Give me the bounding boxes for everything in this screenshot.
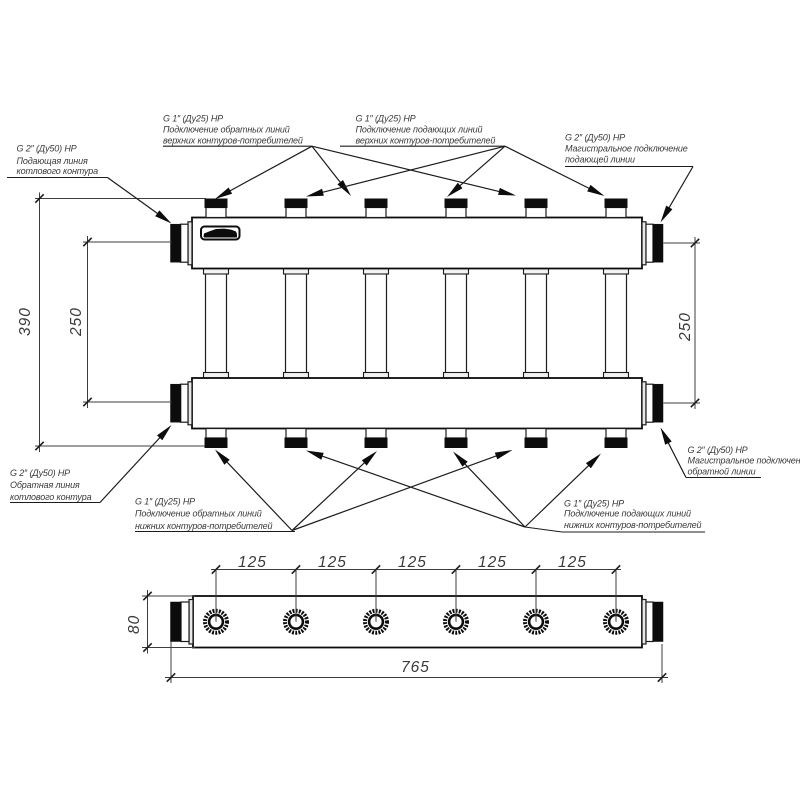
svg-text:125: 125 xyxy=(238,554,267,571)
svg-text:G 1″ (Ду25) НР: G 1″ (Ду25) НР xyxy=(564,499,624,509)
svg-text:котлового контура: котлового контура xyxy=(10,492,92,502)
svg-text:250: 250 xyxy=(677,312,694,342)
svg-text:котлового контура: котлового контура xyxy=(17,166,99,176)
svg-text:G 1″ (Ду25) НР: G 1″ (Ду25) НР xyxy=(135,497,195,507)
svg-text:Подключение подающих линий: Подключение подающих линий xyxy=(564,509,691,519)
svg-text:G 2″ (Ду50) НР: G 2″ (Ду50) НР xyxy=(688,445,748,455)
svg-text:125: 125 xyxy=(398,554,427,571)
svg-text:G 2″ (Ду50) НР: G 2″ (Ду50) НР xyxy=(10,468,70,478)
svg-text:765: 765 xyxy=(401,659,430,676)
svg-text:G 2″ (Ду50) НР: G 2″ (Ду50) НР xyxy=(565,133,625,143)
svg-text:390: 390 xyxy=(17,307,34,336)
svg-text:обратной линии: обратной линии xyxy=(688,467,756,477)
svg-text:Магистральное подключение: Магистральное подключение xyxy=(565,144,688,154)
svg-text:125: 125 xyxy=(318,554,347,571)
svg-text:250: 250 xyxy=(68,307,85,337)
svg-text:верхних контуров-потребителей: верхних контуров-потребителей xyxy=(163,136,303,146)
svg-text:нижних контуров-потребителей: нижних контуров-потребителей xyxy=(564,520,701,530)
svg-text:Подключение обратных линий: Подключение обратных линий xyxy=(135,509,262,519)
svg-text:G 1″ (Ду25) НР: G 1″ (Ду25) НР xyxy=(356,114,416,124)
svg-text:Обратная линия: Обратная линия xyxy=(10,480,80,490)
svg-text:G 2″ (Ду50) НР: G 2″ (Ду50) НР xyxy=(17,144,77,154)
svg-text:нижних контуров-потребителей: нижних контуров-потребителей xyxy=(135,521,272,531)
svg-text:G 1″ (Ду25) НР: G 1″ (Ду25) НР xyxy=(163,114,223,124)
svg-text:Подключение обратных линий: Подключение обратных линий xyxy=(163,125,290,135)
svg-text:125: 125 xyxy=(558,554,587,571)
svg-text:Подающая линия: Подающая линия xyxy=(17,156,88,166)
svg-text:верхних контуров-потребителей: верхних контуров-потребителей xyxy=(356,136,496,146)
svg-text:Подключение подающих линий: Подключение подающих линий xyxy=(356,125,483,135)
svg-text:80: 80 xyxy=(126,615,143,634)
svg-text:подающей линии: подающей линии xyxy=(565,155,635,165)
svg-text:Магистральное подключение: Магистральное подключение xyxy=(688,456,800,466)
svg-text:125: 125 xyxy=(478,554,507,571)
